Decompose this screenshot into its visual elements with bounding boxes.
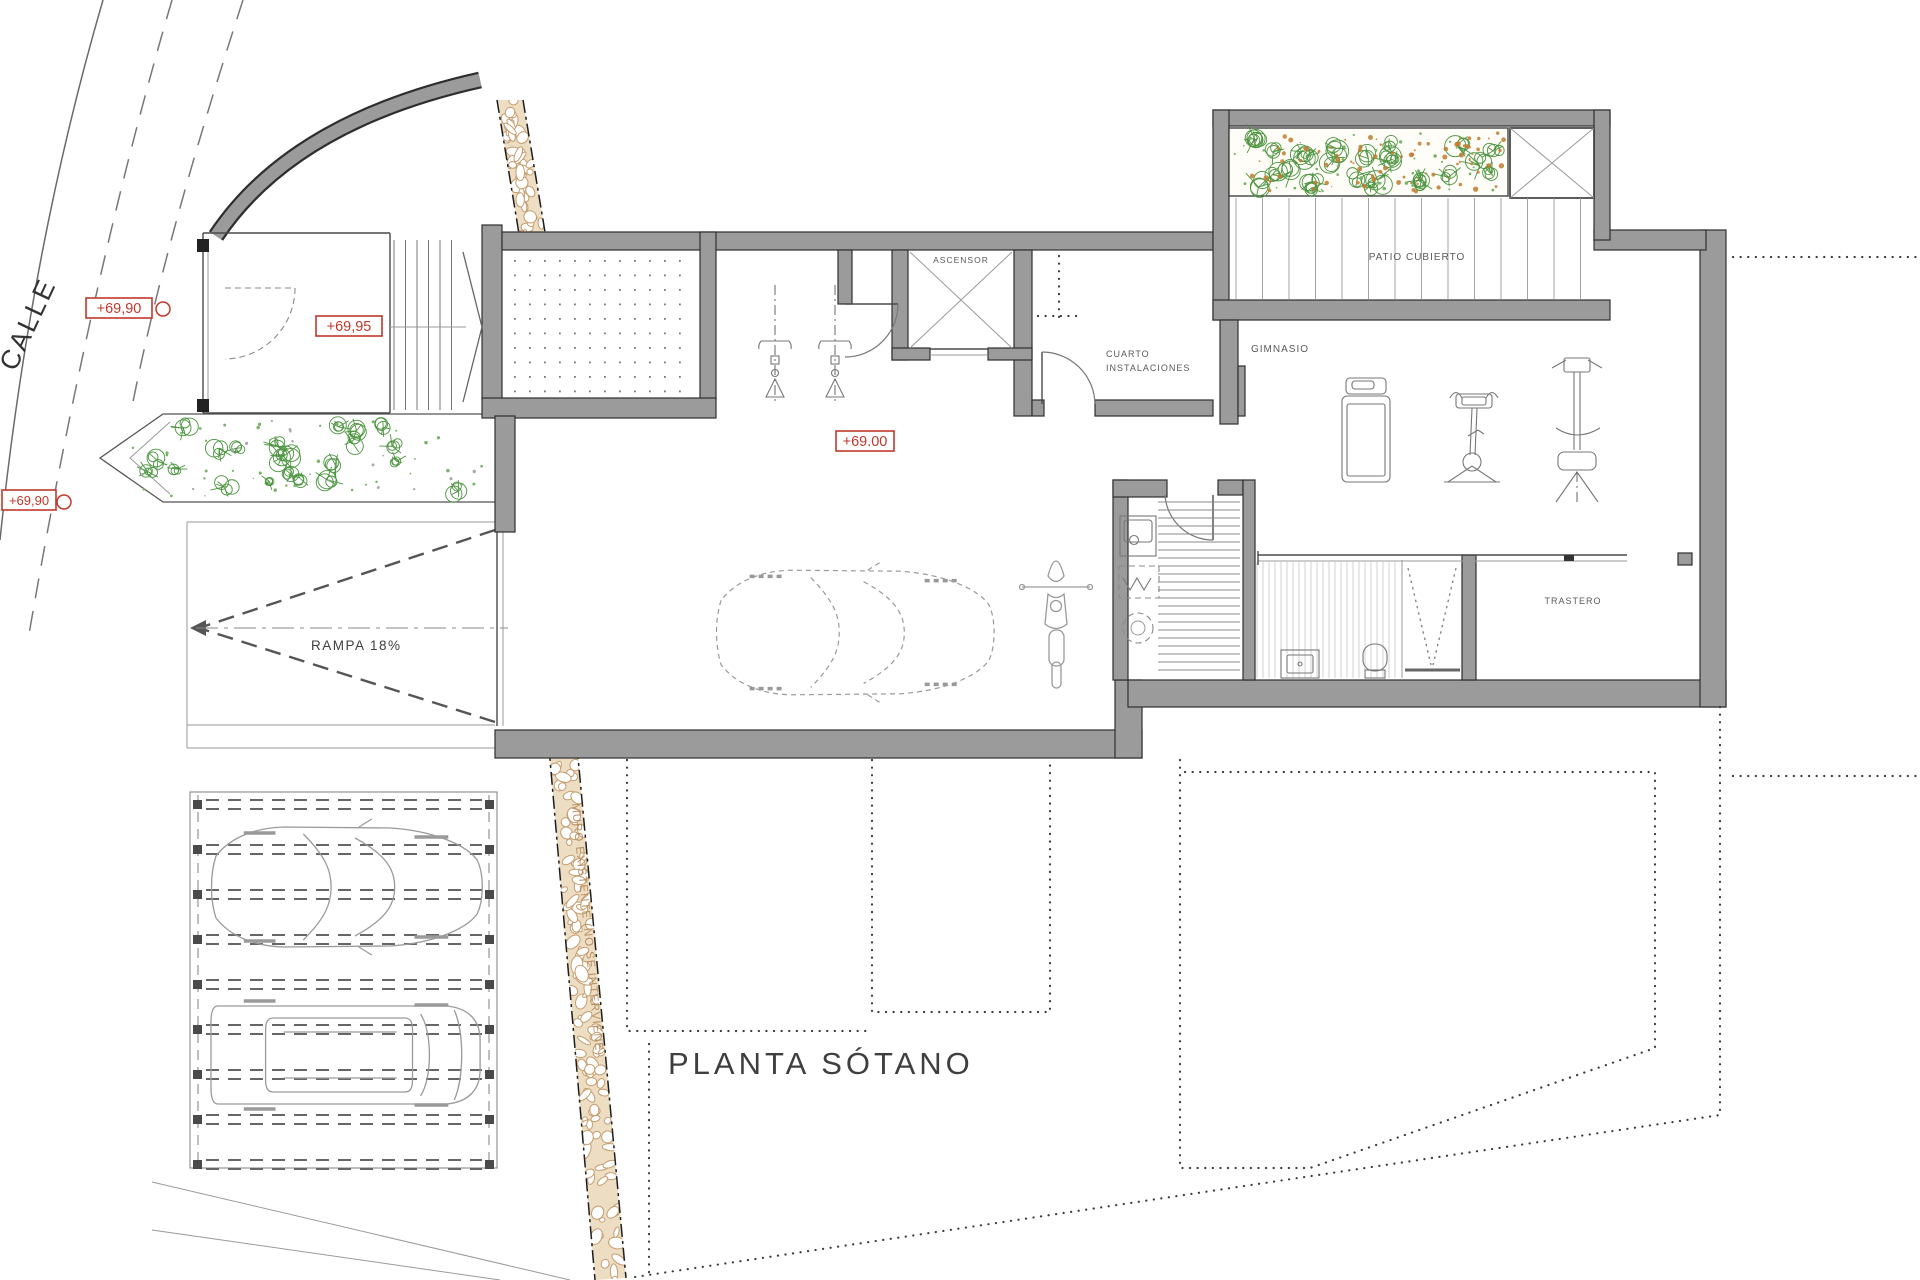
mulch-dot: [1476, 147, 1480, 151]
mulch-dot: [1378, 170, 1382, 174]
dot: [574, 391, 576, 393]
leaf-dot: [409, 473, 411, 475]
post: [193, 890, 202, 899]
post: [485, 980, 494, 989]
parked-suv: [454, 1010, 462, 1100]
leaf-dot: [1276, 169, 1279, 172]
dot: [514, 260, 516, 262]
dot: [529, 376, 531, 378]
gravel-dot: [192, 488, 194, 490]
mulch-dot: [1277, 174, 1282, 179]
gravel-dot: [414, 458, 416, 460]
mulch-dot: [1314, 181, 1318, 185]
leaf-dot: [1315, 168, 1318, 171]
wall-stub: [1678, 553, 1692, 565]
stone: [516, 193, 525, 207]
garage-sports-car: [717, 570, 995, 695]
door-jamb: [197, 399, 209, 412]
post: [193, 1070, 202, 1079]
leaf-dot: [1274, 148, 1276, 150]
parked-suv: [284, 1032, 397, 1078]
gravel-dot: [231, 449, 234, 452]
dot: [649, 304, 651, 306]
dot: [604, 304, 606, 306]
dot: [514, 275, 516, 277]
dot: [574, 318, 576, 320]
mulch-dot: [1471, 153, 1473, 155]
mulch-dot: [1414, 149, 1416, 151]
dot: [619, 333, 621, 335]
dot: [574, 333, 576, 335]
dot: [529, 260, 531, 262]
garage-car: [717, 562, 995, 703]
post: [193, 800, 202, 809]
wall-elevator-south: [892, 348, 930, 360]
mulch-dot: [1325, 181, 1329, 185]
dot: [604, 275, 606, 277]
dot: [649, 275, 651, 277]
dot: [589, 289, 591, 291]
leaf-dot: [317, 460, 320, 463]
dot: [574, 275, 576, 277]
wall-south-band: [1128, 680, 1726, 707]
dot: [664, 289, 666, 291]
dot: [634, 376, 636, 378]
leaf-dot: [1331, 158, 1333, 160]
parked-suv-wheels: [244, 1001, 448, 1109]
leaf-dot: [365, 484, 367, 486]
leaf-dot: [386, 421, 388, 423]
wall-east-outer: [1700, 230, 1726, 707]
room-label-utility-1: CUARTO: [1106, 349, 1150, 359]
leaf-dot: [351, 489, 354, 492]
mulch-dot: [1269, 180, 1272, 183]
mulch-dot: [1459, 137, 1461, 139]
mulch-dot: [1373, 154, 1378, 159]
mulch-dot: [1442, 154, 1447, 159]
leaf-dot: [1456, 147, 1458, 149]
mulch-dot: [1335, 157, 1340, 162]
mulch-dot: [1399, 180, 1401, 182]
moto-seat: [1049, 630, 1064, 666]
wall-north-band: [502, 232, 1213, 250]
bench-feet: [1444, 466, 1500, 482]
dot: [544, 318, 546, 320]
parked-vehicles: [211, 819, 482, 1109]
mulch-dot: [1488, 138, 1490, 140]
leaf-dot: [1399, 140, 1402, 143]
dotted-line: [627, 760, 872, 1031]
dot: [619, 304, 621, 306]
dot: [589, 391, 591, 393]
floor-plan-canvas: +69,90 +69,95 +69,90 +69.00 CALLE ASCENS…: [0, 0, 1920, 1280]
level-marker: +69,90: [97, 301, 142, 317]
dot: [544, 260, 546, 262]
leaf-dot: [1276, 187, 1278, 189]
leaf-dot: [437, 436, 440, 439]
leaf-dot: [336, 423, 339, 426]
basement-floor-plan: +69,90 +69,95 +69,90 +69.00 CALLE ASCENS…: [0, 0, 1920, 1280]
mulch-dot: [1455, 141, 1460, 146]
dot: [589, 333, 591, 335]
post: [485, 935, 494, 944]
leaf-dot: [204, 495, 205, 496]
wall-patio-north: [1213, 110, 1610, 126]
dot: [679, 275, 681, 277]
dot: [574, 289, 576, 291]
leaf-dot: [1270, 155, 1273, 158]
dot: [559, 275, 561, 277]
parked-suv: [266, 1018, 413, 1092]
ramp: [187, 522, 508, 748]
gravel-room-dots: [514, 260, 681, 392]
gravel-dot: [245, 442, 248, 445]
dot: [604, 289, 606, 291]
mulch-dot: [1376, 138, 1378, 140]
dot: [514, 376, 516, 378]
dot: [679, 289, 681, 291]
dot: [559, 391, 561, 393]
dot: [619, 275, 621, 277]
plant-glyph: [1312, 172, 1313, 181]
wall: [482, 225, 502, 400]
treadmill-display: [1352, 381, 1374, 389]
dot: [604, 318, 606, 320]
mulch-dot: [1383, 166, 1388, 171]
mulch-dot: [1470, 162, 1473, 165]
mulch-dot: [1468, 136, 1472, 140]
wall-stairblock-north: [1113, 480, 1167, 497]
leaf-dot: [1441, 161, 1443, 163]
dot: [634, 260, 636, 262]
room-label-elevator: ASCENSOR: [933, 255, 989, 265]
wall: [1594, 230, 1706, 250]
post: [193, 1025, 202, 1034]
wall-patio-east: [1594, 110, 1610, 240]
dot: [589, 304, 591, 306]
leaf-dot: [180, 432, 182, 434]
dot: [619, 347, 621, 349]
stone: [590, 1104, 600, 1116]
cable-seat: [1558, 452, 1596, 470]
post: [485, 1025, 494, 1034]
leaf-dot: [258, 423, 261, 426]
post: [193, 980, 202, 989]
leaf-dot: [132, 447, 134, 449]
mulch-dot: [1417, 178, 1419, 180]
dot: [514, 391, 516, 393]
mulch-dot: [1425, 172, 1427, 174]
leaf-dot: [1433, 154, 1436, 157]
door-swing: [845, 304, 898, 357]
dot: [574, 347, 576, 349]
laundry-drain: [1130, 536, 1139, 545]
gravel-dot: [377, 486, 380, 489]
dot: [604, 260, 606, 262]
leaf-dot: [1248, 136, 1252, 140]
mulch-dot: [1411, 188, 1415, 192]
mulch-dot: [1353, 162, 1355, 164]
wall-patio-west: [1213, 110, 1229, 320]
mulch-dot: [1467, 145, 1470, 148]
leaf-dot: [232, 470, 234, 472]
sink-basin: [1287, 655, 1313, 673]
treadmill-frame: [1342, 396, 1390, 482]
dot: [664, 376, 666, 378]
dot: [679, 376, 681, 378]
bench-seat: [1463, 453, 1481, 471]
level-marker-circle: [57, 495, 71, 509]
dot: [664, 347, 666, 349]
leaf-dot: [166, 454, 169, 457]
leaf-dot: [1413, 157, 1415, 159]
dot: [649, 391, 651, 393]
dot: [604, 362, 606, 364]
mulch-dot: [1324, 163, 1328, 167]
plant-glyph: [1389, 139, 1390, 146]
dot: [544, 347, 546, 349]
leaf-dot: [1412, 172, 1415, 175]
mulch-dot: [1495, 185, 1498, 188]
entry-door-swing: [225, 288, 295, 359]
dot: [634, 347, 636, 349]
wall: [700, 232, 716, 400]
dot: [649, 333, 651, 335]
elevator: [910, 252, 1012, 355]
plant-glyph: [335, 465, 336, 477]
wall-elevator-east: [1014, 250, 1032, 416]
stone: [566, 839, 572, 846]
dot: [649, 347, 651, 349]
leaf-dot: [1417, 169, 1420, 172]
wall-gym-west: [1220, 320, 1238, 424]
dot: [664, 275, 666, 277]
plan-title: PLANTA SÓTANO: [668, 1046, 974, 1081]
dot: [514, 333, 516, 335]
dot: [634, 318, 636, 320]
leaf-dot: [253, 478, 254, 479]
leaf-dot: [170, 495, 173, 498]
cable-top: [1564, 358, 1590, 372]
wall-garage-west: [495, 416, 515, 532]
mulch-dot: [1380, 143, 1383, 146]
dot: [679, 304, 681, 306]
gym-equipment: [1342, 358, 1602, 502]
leaf-dot: [446, 469, 450, 473]
room-label-utility-2: INSTALACIONES: [1106, 363, 1190, 373]
dot: [664, 318, 666, 320]
dot: [529, 304, 531, 306]
mulch-dot: [1362, 184, 1367, 189]
dot: [544, 376, 546, 378]
mulch-dot: [1418, 142, 1422, 146]
wall-stub: [1218, 480, 1243, 495]
mulch-dot: [1501, 137, 1506, 142]
mulch-dot: [1277, 147, 1280, 150]
dot: [679, 333, 681, 335]
bathroom: [1257, 551, 1627, 678]
leaf-dot: [274, 488, 277, 491]
wall-elevator-south: [988, 348, 1032, 360]
dot: [634, 362, 636, 364]
dot: [559, 362, 561, 364]
dot: [559, 260, 561, 262]
wall-storage-west: [1462, 555, 1476, 680]
leaf-dot: [1448, 188, 1450, 190]
mulch-dot: [1477, 137, 1481, 141]
post: [485, 845, 494, 854]
dot: [664, 260, 666, 262]
leaf-dot: [265, 479, 266, 480]
garage-post-symbols: [759, 285, 852, 402]
curved-facade-wall-outline: [216, 80, 480, 236]
dot: [634, 333, 636, 335]
dot: [604, 333, 606, 335]
dot: [559, 333, 561, 335]
dot: [589, 275, 591, 277]
leaf-dot: [1244, 182, 1247, 185]
leaf-dot: [274, 436, 277, 439]
gravel-dot: [473, 470, 476, 473]
cable-station: [1552, 358, 1602, 502]
mulch-dot: [1468, 158, 1470, 160]
labels: CALLE ASCENSOR CUARTO INSTALACIONES GIMN…: [0, 252, 1602, 1081]
dot: [634, 304, 636, 306]
leaf-dot: [223, 424, 226, 427]
gravel-dot: [289, 428, 292, 431]
garage-sports-car: [868, 562, 881, 703]
dot: [544, 275, 546, 277]
dot: [619, 391, 621, 393]
mulch-dot: [1357, 167, 1362, 172]
gravel-dot: [413, 488, 415, 490]
motorcycle: [1020, 561, 1093, 688]
wall-gym-north: [1213, 300, 1610, 320]
leaf-dot: [1419, 132, 1422, 135]
post: [485, 890, 494, 899]
mulch-dot: [1259, 160, 1261, 162]
wall-elevator-west: [892, 250, 908, 360]
dot: [604, 347, 606, 349]
dot: [619, 260, 621, 262]
wall-utility-south: [1095, 400, 1213, 416]
mulch-dot: [1250, 174, 1255, 179]
mulch-dot: [1391, 152, 1394, 155]
dot: [574, 304, 576, 306]
post: [485, 1160, 494, 1169]
mulch-dot: [1456, 163, 1459, 166]
dot: [544, 304, 546, 306]
dot: [634, 391, 636, 393]
leaf-dot: [256, 426, 259, 429]
room-label-patio: PATIO CUBIERTO: [1369, 252, 1466, 263]
leaf-dot: [335, 482, 337, 484]
dot: [529, 362, 531, 364]
mulch-dot: [1448, 177, 1450, 179]
mulch-dot: [1283, 134, 1287, 138]
dot: [529, 289, 531, 291]
parked-suv: [211, 1006, 480, 1104]
boiler-inner: [1131, 621, 1145, 635]
dot: [649, 362, 651, 364]
leaf-dot: [1359, 176, 1363, 180]
shower-slope-lines: [1408, 568, 1456, 665]
leaf-dot: [285, 484, 287, 486]
leaf-dot: [259, 472, 262, 475]
dotted-line: [628, 707, 1720, 1278]
main-staircase: [1158, 502, 1240, 670]
mulch-dot: [1403, 176, 1406, 179]
dot: [679, 347, 681, 349]
dot: [544, 333, 546, 335]
mulch-dot: [1431, 173, 1435, 177]
dot: [634, 289, 636, 291]
post: [193, 935, 202, 944]
mulch-dot: [1437, 185, 1441, 189]
mulch-dot: [1359, 154, 1361, 156]
dot: [559, 304, 561, 306]
dot: [574, 376, 576, 378]
dot: [664, 391, 666, 393]
mulch-dot: [1280, 159, 1284, 163]
leaf-dot: [224, 486, 227, 489]
dot: [559, 289, 561, 291]
leaf-dot: [1449, 141, 1451, 143]
mulch-dot: [1473, 186, 1478, 191]
leaf-dot: [319, 425, 321, 427]
ramp-label: RAMPA 18%: [311, 638, 402, 653]
leaf-dot: [205, 440, 207, 442]
leaf-dot: [203, 477, 205, 479]
mulch-dot: [1411, 153, 1414, 156]
leaf-dot: [1331, 186, 1332, 187]
leaf-dot: [1405, 181, 1408, 184]
level-marker: +69.00: [843, 434, 888, 450]
mulch-dot: [1426, 142, 1430, 146]
mulch-dot: [1410, 182, 1412, 184]
treadmill: [1342, 378, 1390, 482]
dot: [664, 362, 666, 364]
wall-door-stub: [838, 250, 852, 304]
parked-suv: [421, 1014, 430, 1096]
parked-sports-car: [355, 838, 395, 936]
dot: [514, 347, 516, 349]
leaf-dot: [461, 483, 463, 485]
dot: [529, 347, 531, 349]
level-marker-circle: [156, 302, 170, 316]
wall-garage-south: [495, 730, 1142, 758]
patio-deck-boards: [1236, 198, 1581, 299]
leaf-dot: [1411, 184, 1414, 187]
dot: [649, 260, 651, 262]
dot: [679, 318, 681, 320]
garage-sports-car: [864, 582, 905, 684]
mulch-dot: [1459, 161, 1461, 163]
mulch-dot: [1498, 149, 1501, 152]
dot: [514, 318, 516, 320]
wall: [482, 398, 716, 418]
wall-notch: [1238, 366, 1245, 416]
room-label-storage: TRASTERO: [1544, 596, 1601, 606]
leaf-dot: [293, 484, 296, 487]
leaf-dot: [1375, 149, 1378, 152]
dot: [559, 347, 561, 349]
leaf-dot: [395, 430, 397, 432]
parked-sports-car-wheels: [244, 833, 448, 941]
curved-facade-wall: [216, 80, 480, 236]
gravel-dot: [449, 477, 452, 480]
stone: [516, 164, 525, 180]
